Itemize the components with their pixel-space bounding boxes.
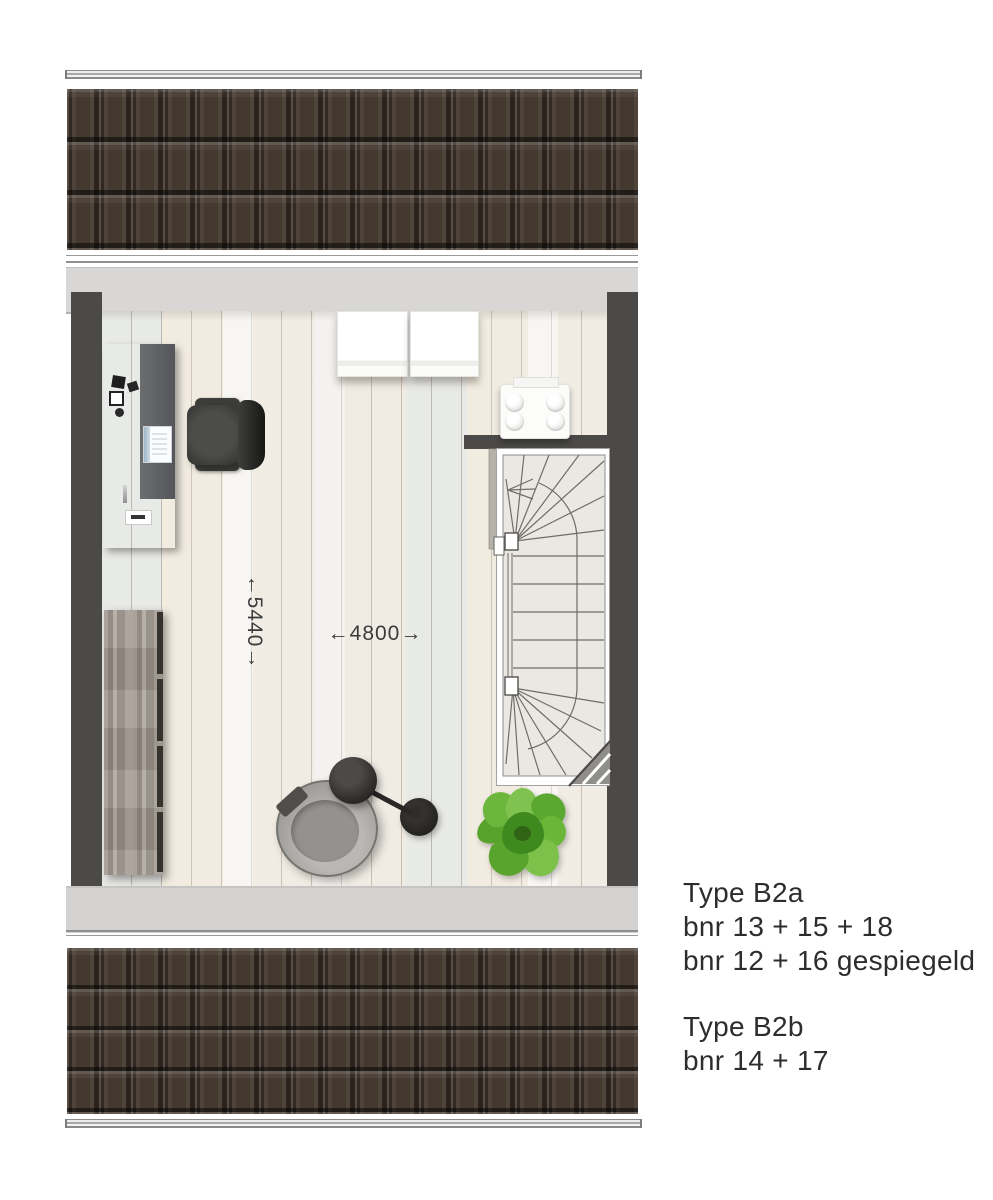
- plant: [476, 788, 568, 884]
- desk-accessory: [127, 381, 139, 393]
- lounge-chair-seat: [291, 800, 359, 862]
- legend-group-b2b: Type B2b bnr 14 + 17: [683, 1010, 975, 1078]
- desk-top-panel: [140, 344, 175, 499]
- ridge-cap-top: [65, 70, 642, 79]
- legend-line: bnr 12 + 16 gespiegeld: [683, 944, 975, 978]
- office-chair: [185, 396, 267, 474]
- unit-knob: [505, 393, 524, 412]
- laptop: [143, 426, 172, 463]
- floor-lamp-base: [400, 798, 438, 836]
- gutter-bottom: [65, 1119, 642, 1128]
- desk-accessory: [115, 408, 124, 417]
- sideboard-handle: [157, 612, 163, 674]
- desk-tray: [125, 510, 152, 525]
- dimension-width-label: ←4800→: [318, 622, 432, 646]
- desk: [103, 344, 175, 548]
- legend-spacer: [683, 978, 975, 1010]
- legend-line: bnr 14 + 17: [683, 1044, 975, 1078]
- eave-lines-top: [66, 253, 638, 267]
- laptop-screen: [144, 427, 150, 462]
- unit-knob: [546, 412, 565, 431]
- eave-lines-bottom: [66, 930, 638, 944]
- unit-knob: [505, 412, 524, 431]
- wall-left: [71, 292, 102, 905]
- chair-back: [238, 400, 265, 470]
- plant-center: [514, 826, 531, 841]
- legend-line: bnr 13 + 15 + 18: [683, 910, 975, 944]
- roof-tiles-top: [67, 89, 638, 250]
- desk-accessory: [109, 391, 124, 406]
- dimension-depth-label: ←5440→: [242, 567, 266, 677]
- dryer: [410, 311, 479, 377]
- mechanical-unit-duct: [513, 377, 559, 388]
- floorplan-page: ←5440→ ←4800→ Type B2a bnr 13 + 15 + 18 …: [0, 0, 993, 1200]
- laptop-keyboard: [152, 433, 167, 455]
- sideboard-handle: [157, 746, 163, 807]
- roof-tiles-bottom: [67, 948, 638, 1114]
- knee-wall-band-bottom: [66, 886, 638, 933]
- stair-partition: [489, 449, 497, 549]
- knee-wall-band-top: [66, 267, 638, 314]
- legend-group-b2a: Type B2a bnr 13 + 15 + 18 bnr 12 + 16 ge…: [683, 876, 975, 978]
- legend-title: Type B2b: [683, 1010, 975, 1044]
- legend-block: Type B2a bnr 13 + 15 + 18 bnr 12 + 16 ge…: [683, 876, 975, 1078]
- mechanical-unit: [500, 384, 570, 439]
- sideboard-handle: [157, 812, 163, 872]
- unit-knob: [546, 393, 565, 412]
- desk-accessory: [111, 375, 126, 389]
- sideboard: [104, 610, 163, 875]
- legend-title: Type B2a: [683, 876, 975, 910]
- pen: [123, 485, 127, 503]
- sideboard-handle: [157, 679, 163, 741]
- staircase: [488, 444, 614, 792]
- floor-lamp-head: [329, 757, 377, 804]
- washer: [337, 311, 408, 377]
